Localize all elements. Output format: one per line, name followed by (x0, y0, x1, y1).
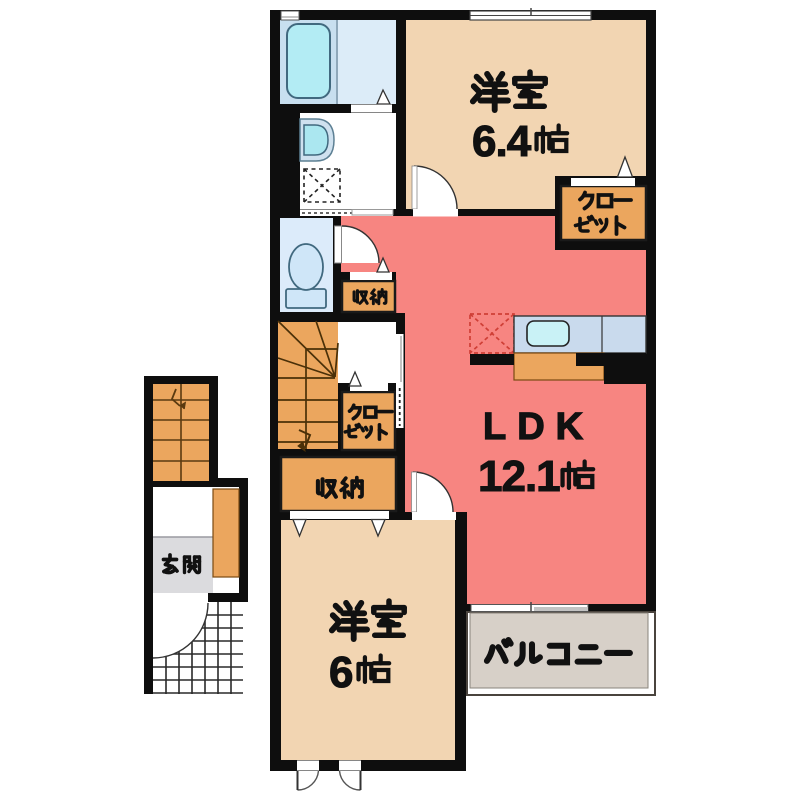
svg-text:LDK: LDK (483, 406, 594, 448)
svg-text:12.1: 12.1 (478, 452, 560, 501)
svg-text:6.4: 6.4 (472, 117, 532, 166)
svg-text:6: 6 (329, 648, 353, 697)
